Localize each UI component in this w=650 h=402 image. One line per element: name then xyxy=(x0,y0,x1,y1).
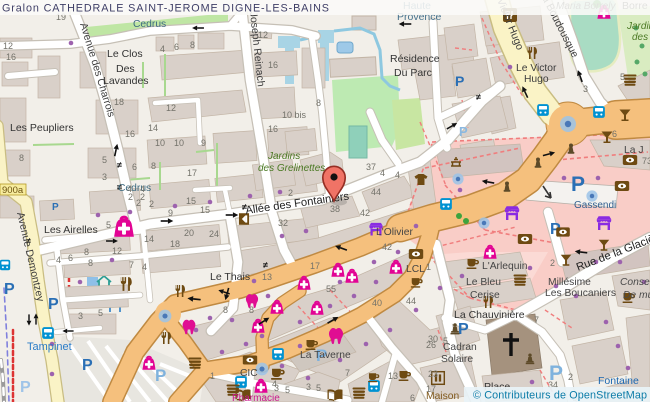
svg-text:Jardin: Jardin xyxy=(626,21,650,32)
svg-text:3: 3 xyxy=(102,172,107,182)
svg-text:P: P xyxy=(4,281,15,298)
svg-text:24: 24 xyxy=(209,229,219,239)
svg-text:L'Arlequin: L'Arlequin xyxy=(482,261,528,272)
svg-text:P: P xyxy=(155,366,166,385)
svg-text:3: 3 xyxy=(306,382,311,392)
svg-text:42: 42 xyxy=(360,208,370,218)
svg-text:2: 2 xyxy=(288,188,293,198)
svg-text:20: 20 xyxy=(184,228,194,238)
svg-text:4: 4 xyxy=(395,170,400,180)
svg-text:44: 44 xyxy=(371,187,381,197)
svg-text:des: des xyxy=(632,32,648,43)
svg-text:12: 12 xyxy=(3,41,13,51)
svg-text:5: 5 xyxy=(98,308,103,318)
svg-text:5: 5 xyxy=(106,220,111,230)
svg-text:Conserv: Conserv xyxy=(620,277,650,288)
svg-text:P: P xyxy=(455,73,464,89)
svg-text:5: 5 xyxy=(620,72,625,82)
svg-text:P: P xyxy=(48,296,59,313)
svg-text:1: 1 xyxy=(210,371,215,381)
svg-text:73: 73 xyxy=(642,156,650,166)
svg-text:3: 3 xyxy=(583,84,588,94)
svg-text:4: 4 xyxy=(142,262,147,272)
svg-text:23: 23 xyxy=(428,369,438,379)
svg-text:Cerise: Cerise xyxy=(470,290,500,301)
svg-text:6: 6 xyxy=(174,42,179,52)
svg-text:55: 55 xyxy=(326,284,336,294)
svg-text:7: 7 xyxy=(345,368,350,378)
svg-text:4: 4 xyxy=(127,184,132,194)
svg-text:La Taverne: La Taverne xyxy=(300,350,351,361)
svg-text:P: P xyxy=(571,173,585,196)
svg-text:Cadran: Cadran xyxy=(443,342,477,353)
svg-text:P: P xyxy=(459,124,468,139)
svg-text:La Chauvinière: La Chauvinière xyxy=(454,309,525,321)
svg-text:16: 16 xyxy=(268,60,278,70)
svg-text:37: 37 xyxy=(366,162,376,172)
svg-text:Cedrus: Cedrus xyxy=(118,183,151,194)
svg-text:7: 7 xyxy=(534,315,539,325)
svg-text:8: 8 xyxy=(151,161,156,171)
svg-text:18: 18 xyxy=(170,239,180,249)
svg-text:Gassendi: Gassendi xyxy=(574,200,616,211)
svg-text:P: P xyxy=(458,321,469,338)
svg-text:8: 8 xyxy=(19,153,24,163)
svg-text:Millésime: Millésime xyxy=(548,277,591,288)
svg-text:2: 2 xyxy=(550,258,555,268)
svg-text:5: 5 xyxy=(102,155,107,165)
svg-text:≠: ≠ xyxy=(117,160,122,170)
svg-text:12: 12 xyxy=(258,30,268,40)
svg-text:44: 44 xyxy=(406,296,416,306)
svg-text:5: 5 xyxy=(316,383,321,393)
svg-text:16: 16 xyxy=(6,52,16,62)
svg-text:3: 3 xyxy=(274,383,279,393)
svg-text:Résidence: Résidence xyxy=(390,53,440,65)
svg-text:13: 13 xyxy=(262,272,272,282)
svg-text:P: P xyxy=(82,357,93,374)
svg-text:6: 6 xyxy=(68,253,73,263)
svg-text:Lavandes: Lavandes xyxy=(103,75,149,87)
svg-text:Solaire: Solaire xyxy=(441,354,473,365)
svg-text:15: 15 xyxy=(200,205,210,215)
svg-text:8: 8 xyxy=(190,40,195,50)
svg-text:8: 8 xyxy=(88,258,93,268)
svg-text:L'Olivier: L'Olivier xyxy=(376,227,413,238)
svg-text:8: 8 xyxy=(84,247,89,257)
svg-text:CIC: CIC xyxy=(240,368,258,379)
svg-text:6: 6 xyxy=(132,162,137,172)
svg-text:17: 17 xyxy=(426,384,436,394)
svg-text:Cedrus: Cedrus xyxy=(133,19,166,30)
svg-text:4: 4 xyxy=(380,168,385,178)
svg-text:4: 4 xyxy=(140,184,145,194)
svg-text:9: 9 xyxy=(201,138,206,148)
svg-text:8: 8 xyxy=(249,305,254,315)
svg-text:10 bis: 10 bis xyxy=(282,110,307,120)
svg-text:P: P xyxy=(52,202,59,213)
svg-text:Le Bleu: Le Bleu xyxy=(466,277,501,288)
svg-text:Hugo: Hugo xyxy=(524,74,549,85)
svg-text:Du Parc: Du Parc xyxy=(394,67,432,79)
svg-text:Jardins: Jardins xyxy=(267,151,300,162)
svg-text:Le Clos: Le Clos xyxy=(107,48,143,60)
svg-text:8: 8 xyxy=(223,305,228,315)
svg-text:38: 38 xyxy=(330,204,340,214)
svg-text:Le Victor: Le Victor xyxy=(516,63,557,74)
svg-text:2: 2 xyxy=(136,198,141,208)
svg-text:15: 15 xyxy=(186,196,196,206)
svg-text:30: 30 xyxy=(428,334,438,344)
svg-text:P: P xyxy=(20,379,31,396)
svg-text:6: 6 xyxy=(410,393,415,402)
svg-text:Tampinet: Tampinet xyxy=(27,341,72,353)
svg-text:Les Boucaniers: Les Boucaniers xyxy=(545,288,616,299)
svg-text:13: 13 xyxy=(388,371,398,381)
svg-text:2: 2 xyxy=(149,199,154,209)
svg-text:6: 6 xyxy=(612,129,617,139)
svg-text:40: 40 xyxy=(372,298,382,308)
svg-text:2: 2 xyxy=(568,372,573,382)
svg-text:7: 7 xyxy=(129,260,134,270)
svg-text:Pharmacie: Pharmacie xyxy=(232,393,280,402)
svg-text:10: 10 xyxy=(174,138,184,148)
svg-text:14: 14 xyxy=(144,234,154,244)
svg-text:des Grelinettes: des Grelinettes xyxy=(258,163,325,174)
svg-text:≠: ≠ xyxy=(476,92,481,102)
svg-text:17: 17 xyxy=(187,168,197,178)
svg-text:Des: Des xyxy=(116,63,135,75)
svg-text:10: 10 xyxy=(155,138,165,148)
svg-text:3: 3 xyxy=(78,311,83,321)
svg-text:12: 12 xyxy=(166,103,176,113)
svg-text:4: 4 xyxy=(160,44,165,54)
svg-text:Le Thais: Le Thais xyxy=(210,271,250,283)
svg-text:Fontaine: Fontaine xyxy=(598,375,639,387)
svg-text:12: 12 xyxy=(112,246,122,256)
svg-text:5: 5 xyxy=(285,385,290,395)
svg-text:16: 16 xyxy=(268,124,278,134)
svg-text:32: 32 xyxy=(278,218,288,228)
svg-text:42: 42 xyxy=(382,242,392,252)
svg-text:8: 8 xyxy=(316,98,321,108)
svg-text:900a: 900a xyxy=(2,185,24,196)
svg-text:14: 14 xyxy=(148,123,158,133)
svg-text:© Contributeurs de OpenStreetM: © Contributeurs de OpenStreetMap xyxy=(473,390,647,402)
svg-text:LCL: LCL xyxy=(406,264,425,275)
svg-text:≠: ≠ xyxy=(263,260,268,270)
svg-text:Les Airelles: Les Airelles xyxy=(44,224,98,236)
svg-text:5: 5 xyxy=(443,336,448,346)
svg-text:9: 9 xyxy=(168,208,173,218)
svg-text:La J: La J xyxy=(624,145,643,156)
svg-text:De mu: De mu xyxy=(623,290,650,301)
svg-text:17: 17 xyxy=(310,261,320,271)
svg-text:Les Peupliers: Les Peupliers xyxy=(10,122,74,134)
svg-text:Gralon CATHEDRALE SAINT-JEROME: Gralon CATHEDRALE SAINT-JEROME DIGNE-LES… xyxy=(2,3,329,15)
svg-text:4: 4 xyxy=(56,255,61,265)
svg-text:18: 18 xyxy=(114,97,124,107)
svg-text:16: 16 xyxy=(125,129,135,139)
svg-text:1: 1 xyxy=(426,262,431,272)
